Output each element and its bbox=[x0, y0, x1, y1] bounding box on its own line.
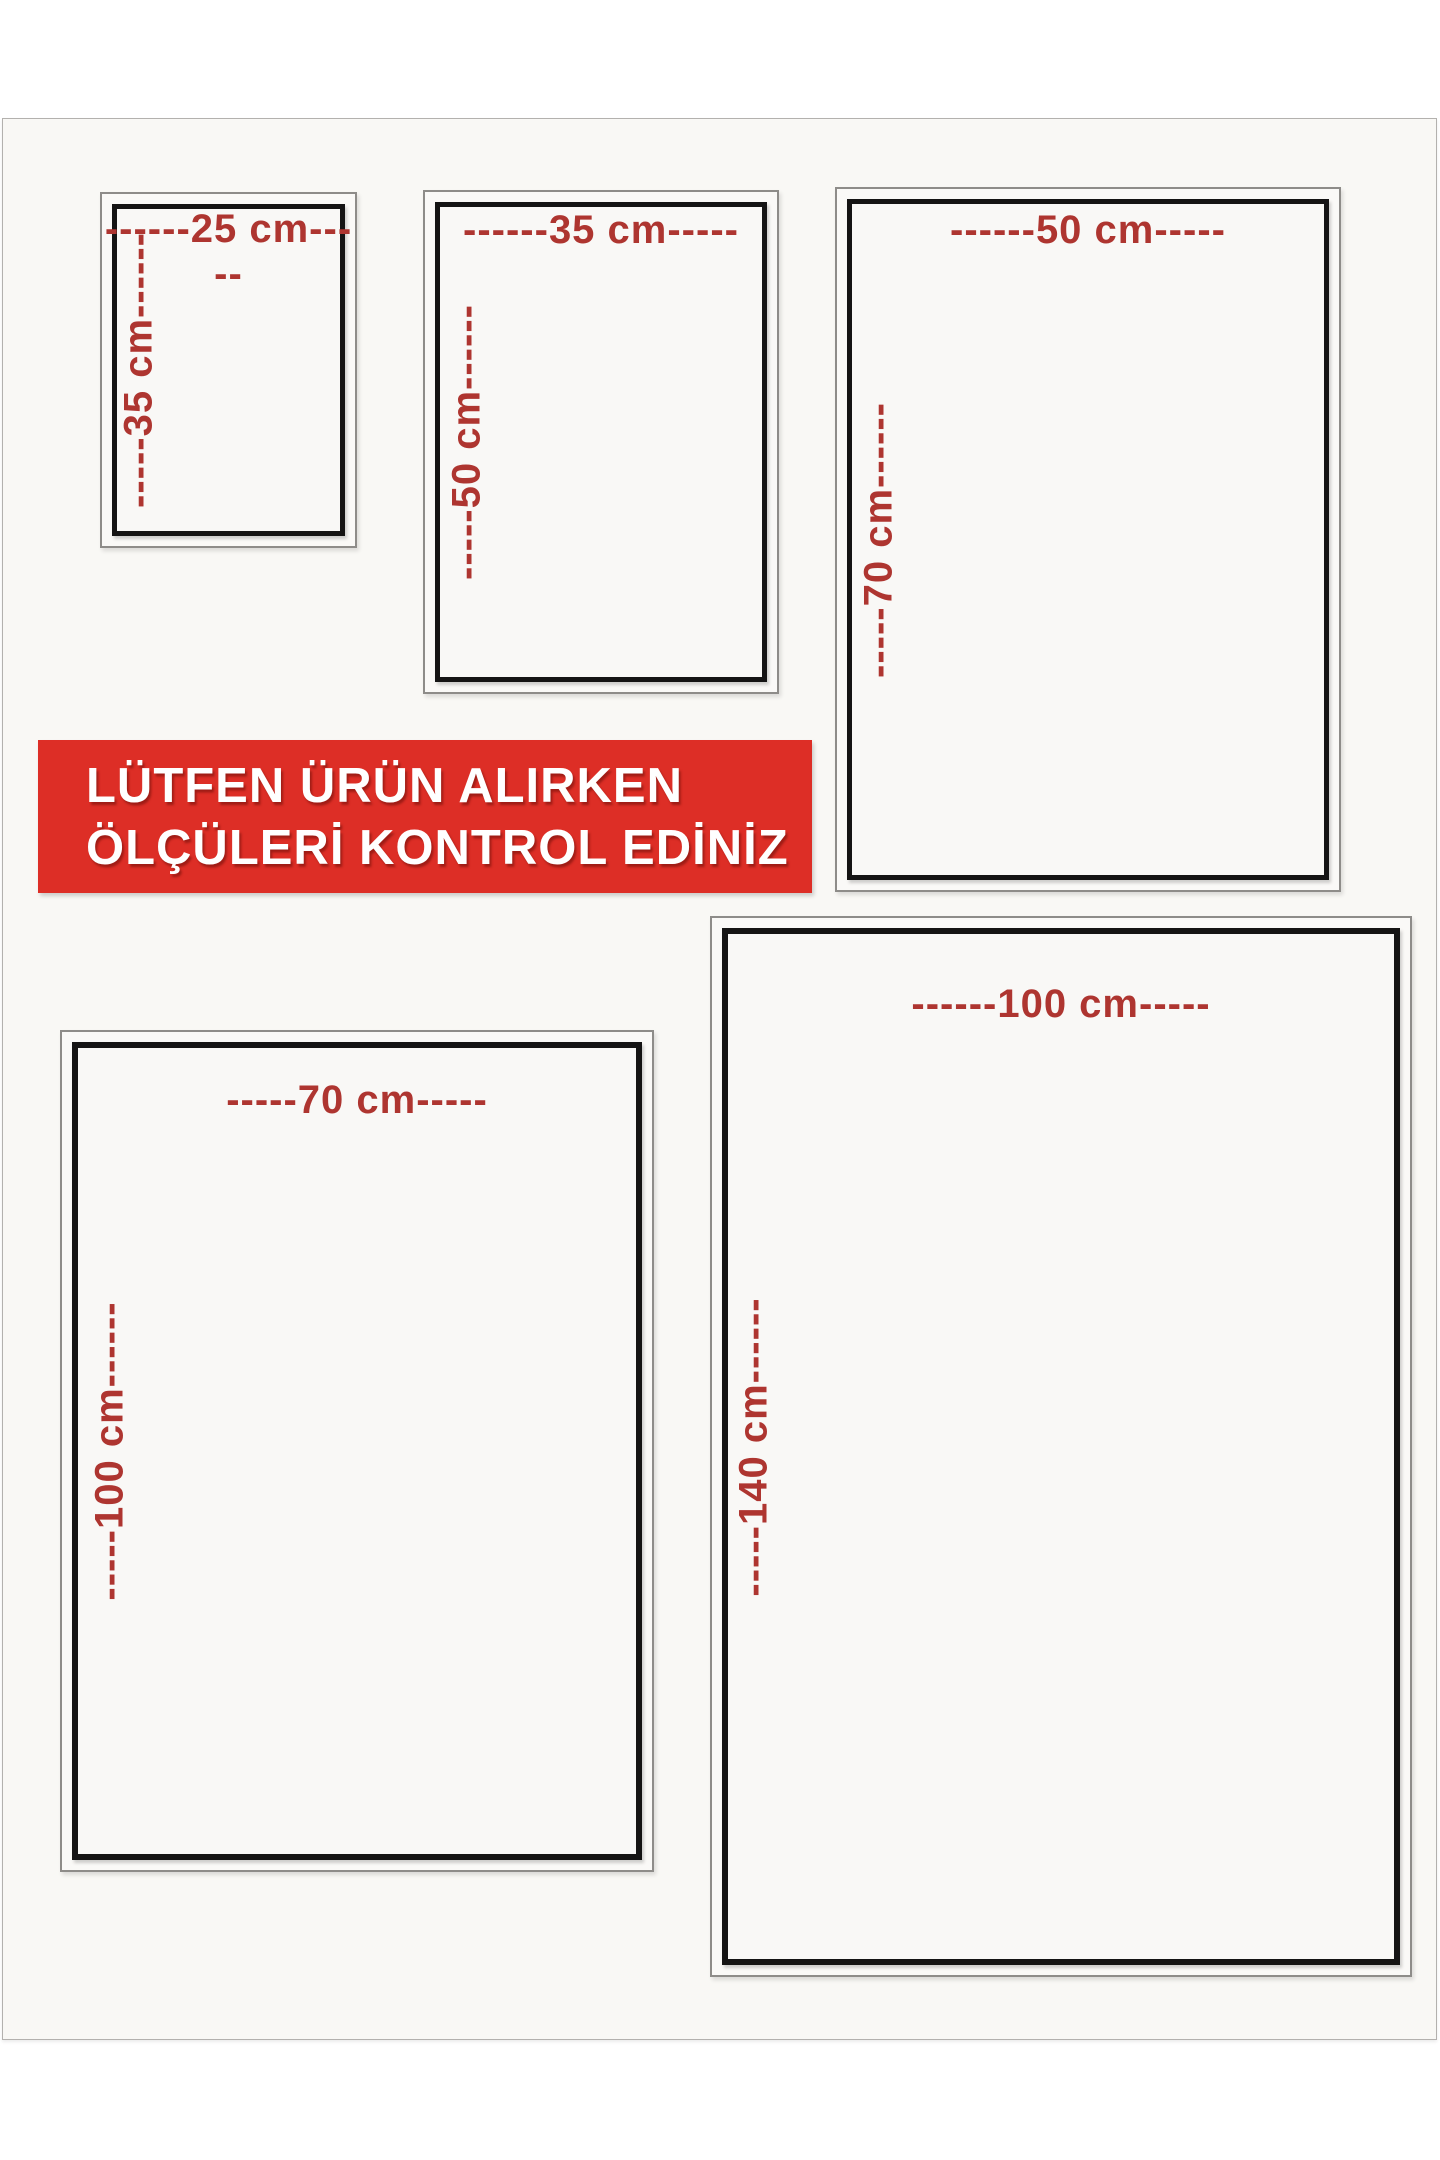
height-label: -----100 cm------ bbox=[88, 1301, 133, 1600]
height-label: -----70 cm------ bbox=[857, 402, 902, 678]
height-label: -----50 cm------ bbox=[445, 304, 490, 580]
inner-frame bbox=[847, 199, 1329, 880]
height-label: -----140 cm------ bbox=[732, 1297, 777, 1596]
inner-frame bbox=[72, 1042, 642, 1860]
width-label: ------35 cm----- bbox=[425, 208, 777, 253]
size-box-25x35: ------25 cm----- -----35 cm------ bbox=[100, 192, 357, 548]
height-label: -----35 cm------ bbox=[117, 232, 162, 508]
size-box-50x70: ------50 cm----- -----70 cm------ bbox=[835, 187, 1341, 892]
size-box-100x140: ------100 cm----- -----140 cm------ bbox=[710, 916, 1412, 1977]
width-label: -----70 cm----- bbox=[62, 1078, 652, 1123]
width-label: ------50 cm----- bbox=[837, 208, 1339, 253]
warning-banner-line-2: ÖLÇÜLERİ KONTROL EDİNİZ bbox=[86, 817, 812, 879]
inner-frame bbox=[722, 928, 1400, 1965]
warning-banner: LÜTFEN ÜRÜN ALIRKEN ÖLÇÜLERİ KONTROL EDİ… bbox=[38, 740, 812, 893]
width-label: ------100 cm----- bbox=[712, 982, 1410, 1027]
warning-banner-line-1: LÜTFEN ÜRÜN ALIRKEN bbox=[86, 755, 812, 817]
size-box-35x50: ------35 cm----- -----50 cm------ bbox=[423, 190, 779, 694]
size-box-70x100: -----70 cm----- -----100 cm------ bbox=[60, 1030, 654, 1872]
